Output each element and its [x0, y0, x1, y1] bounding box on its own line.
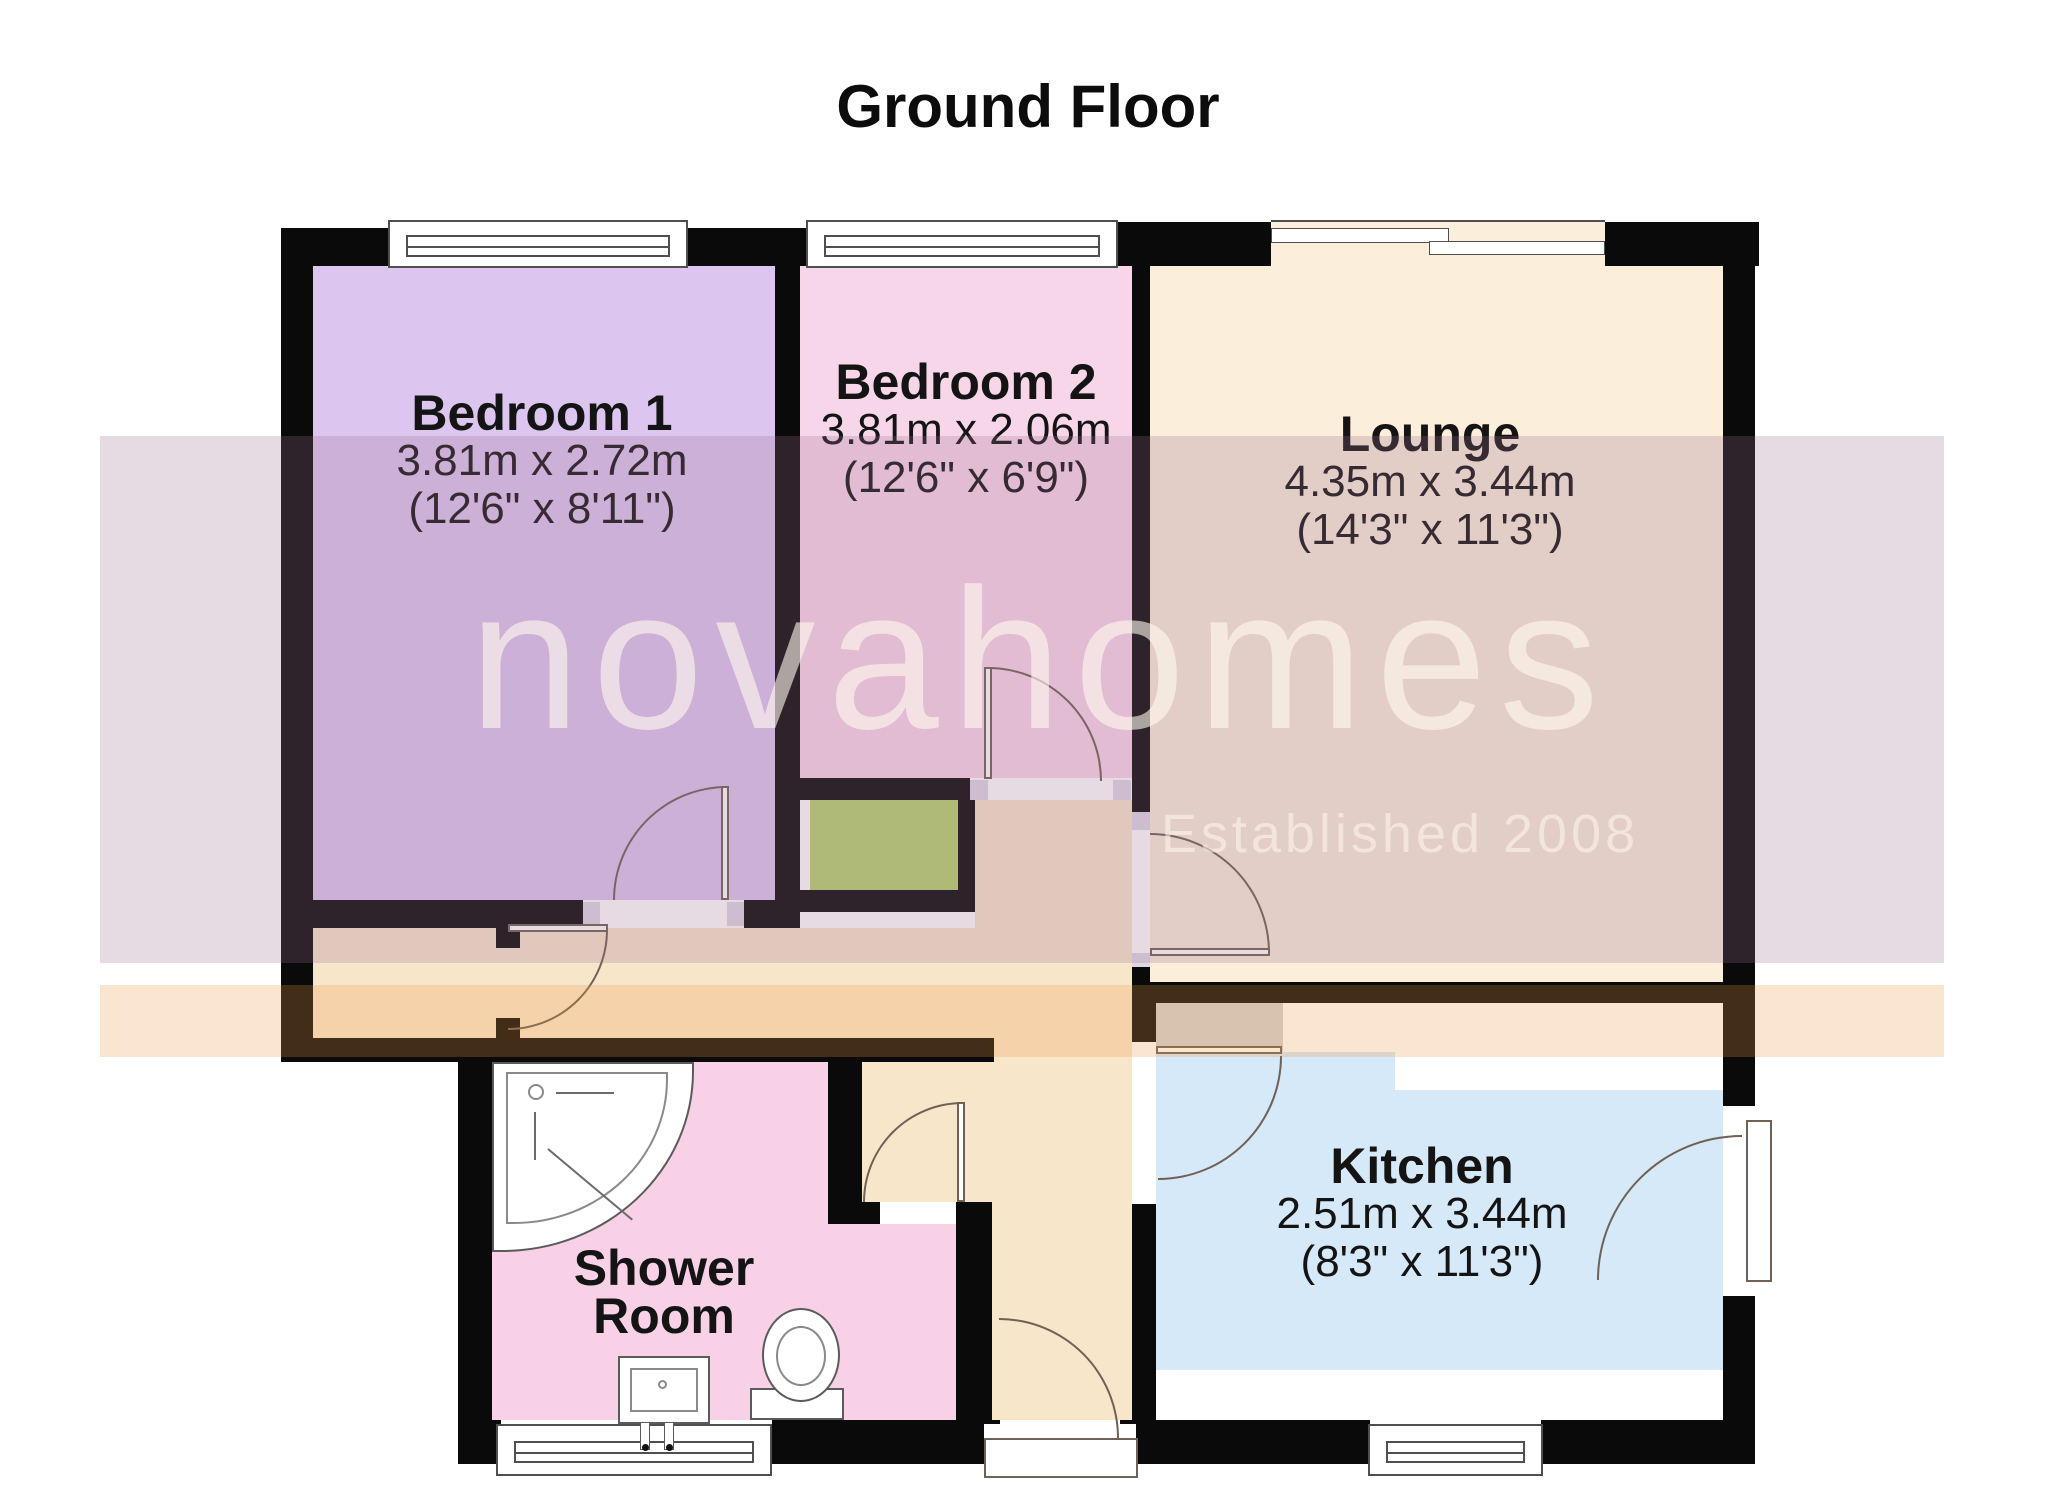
hallway-floor-right — [975, 800, 1132, 928]
shower-head-icon — [528, 1084, 544, 1100]
floor-plan-page: Ground Floor — [0, 0, 2048, 1489]
wall-shower-door-stub — [828, 1202, 880, 1224]
kitchen-counter-step — [1395, 1052, 1723, 1090]
wall-shower-right-upper — [828, 1062, 862, 1224]
room-size-metric: 4.35m x 3.44m — [1230, 458, 1630, 506]
room-size-imperial: (12'6" x 8'11") — [342, 485, 742, 533]
door-leaf-bedroom1 — [721, 786, 729, 900]
hallway-floor-top — [313, 928, 1132, 1038]
window-lounge-left — [1271, 228, 1449, 243]
room-size-imperial: (14'3" x 11'3") — [1230, 506, 1630, 554]
room-name: Bedroom 2 — [766, 358, 1166, 406]
room-label-bedroom1: Bedroom 1 3.81m x 2.72m (12'6" x 8'11") — [342, 389, 742, 533]
wall-kitchen-left-lower — [1132, 1204, 1156, 1420]
window-glazing — [406, 235, 670, 257]
wall-corridor-bottom — [281, 1038, 994, 1062]
door-leaf-entrance — [984, 1438, 1138, 1478]
jamb-kitchen-bottom — [1132, 1190, 1156, 1204]
door-leaf-kitchen — [1156, 1046, 1282, 1054]
wall-closet-bottom — [780, 890, 975, 912]
kitchen-appliance-counter — [1156, 1003, 1283, 1052]
wall-right-lower — [1723, 1296, 1755, 1464]
kitchen-counter-bottom — [1156, 1370, 1723, 1420]
room-size-metric: 2.51m x 3.44m — [1222, 1190, 1622, 1238]
jamb-bedroom1-right — [727, 902, 744, 926]
wall-lounge-left-upper — [1132, 262, 1150, 812]
window-glazing — [514, 1441, 754, 1463]
door-leaf-bedroom2 — [984, 667, 992, 779]
room-size-imperial: (12'6" x 6'9") — [766, 454, 1166, 502]
room-name: Kitchen — [1222, 1142, 1622, 1190]
room-name: Shower Room — [544, 1244, 784, 1340]
wall-bedroom2-bottom — [775, 778, 970, 800]
tap-dot-right — [666, 1444, 673, 1451]
wall-bottom-3 — [1120, 1420, 1370, 1464]
door-leaf-hallway — [508, 924, 608, 932]
wall-right-upper — [1723, 228, 1755, 1106]
window-glazing — [1386, 1441, 1525, 1463]
wall-bottom-2 — [772, 1420, 1000, 1464]
wall-lounge-bottom — [1132, 982, 1723, 1003]
wall-top-2 — [688, 228, 806, 266]
room-label-bedroom2: Bedroom 2 3.81m x 2.06m (12'6" x 6'9") — [766, 358, 1166, 502]
jamb-bedroom2-right — [1113, 780, 1131, 800]
door-leaf-kitchen-exterior — [1746, 1120, 1772, 1282]
room-label-shower-room: Shower Room — [544, 1244, 784, 1340]
kitchen-counter-top — [1283, 1003, 1723, 1055]
wall-top-3 — [1118, 222, 1271, 266]
wall-shower-left — [458, 1062, 492, 1464]
room-size-imperial: (8'3" x 11'3") — [1222, 1238, 1622, 1286]
jamb-kitchen-top — [1132, 1042, 1156, 1056]
shower-room-floor-2 — [828, 1224, 956, 1420]
wall-bedroom1-bottom-right — [744, 900, 775, 928]
lounge-floor — [1150, 222, 1723, 982]
window-kitchen — [1368, 1424, 1543, 1476]
jamb-lounge-top — [1132, 812, 1150, 830]
tap-dot-left — [642, 1444, 649, 1451]
bedroom2-floor — [800, 262, 1132, 778]
window-glazing — [824, 235, 1100, 257]
room-size-metric: 3.81m x 2.72m — [342, 437, 742, 485]
wall-left — [281, 228, 313, 1062]
jamb-kitchen-ext-bottom — [1723, 1280, 1757, 1296]
wall-bottom-1 — [458, 1420, 501, 1464]
lounge-top-edge-line — [1271, 220, 1605, 222]
room-name: Lounge — [1230, 410, 1630, 458]
jamb-bedroom2-left — [970, 780, 988, 800]
window-shower-room — [496, 1424, 772, 1476]
room-label-kitchen: Kitchen 2.51m x 3.44m (8'3" x 11'3") — [1222, 1142, 1622, 1286]
sink-basin — [630, 1368, 698, 1412]
closet-floor — [810, 800, 958, 890]
window-bedroom1 — [388, 220, 688, 268]
window-lounge-right — [1429, 241, 1605, 255]
page-title: Ground Floor — [628, 72, 1428, 141]
room-size-metric: 3.81m x 2.06m — [766, 406, 1166, 454]
shower-detail-line — [556, 1092, 614, 1094]
jamb-bedroom1-left — [583, 902, 600, 926]
jamb-lounge-bottom — [1132, 953, 1150, 967]
window-bedroom2 — [806, 220, 1118, 268]
door-leaf-shower-room — [957, 1102, 965, 1202]
door-leaf-lounge — [1150, 948, 1270, 956]
wall-shower-right-lower — [956, 1202, 992, 1420]
shower-detail-line-2 — [534, 1112, 536, 1160]
room-label-lounge: Lounge 4.35m x 3.44m (14'3" x 11'3") — [1230, 410, 1630, 554]
sink-drain-icon — [658, 1380, 667, 1389]
room-name: Bedroom 1 — [342, 389, 742, 437]
